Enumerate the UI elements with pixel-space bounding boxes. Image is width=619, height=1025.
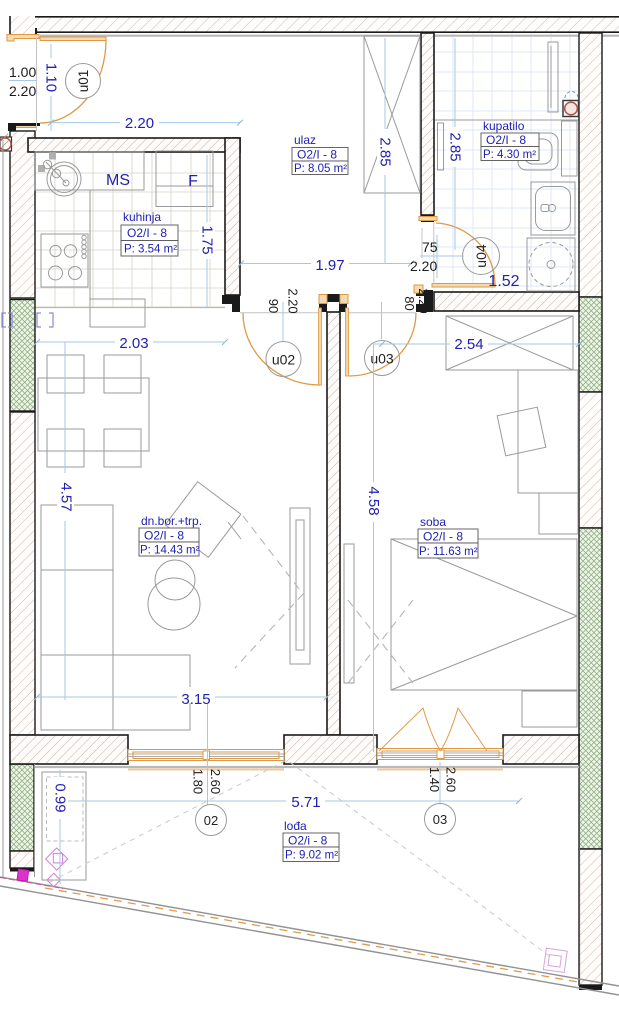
svg-text:4.57: 4.57	[58, 482, 75, 511]
svg-text:02: 02	[204, 813, 218, 828]
svg-text:O2/I - 8: O2/I - 8	[486, 133, 526, 147]
svg-text:dn.bor.+trp.: dn.bor.+trp.	[141, 514, 202, 528]
svg-text:u04: u04	[473, 244, 489, 268]
svg-text:2.85: 2.85	[377, 137, 394, 166]
svg-text:ulaz: ulaz	[294, 133, 316, 147]
svg-text:2.20: 2.20	[416, 288, 431, 313]
svg-text:1.97: 1.97	[315, 257, 344, 274]
svg-text:O2/I - 8: O2/I - 8	[297, 148, 337, 162]
svg-text:1.80: 1.80	[191, 769, 206, 794]
svg-text:kupatilo: kupatilo	[483, 119, 525, 133]
svg-text:2.20: 2.20	[410, 258, 437, 274]
svg-text:2.20: 2.20	[286, 288, 301, 313]
svg-text:O2/I - 8: O2/I - 8	[127, 226, 167, 240]
svg-text:P: 4.30 m²: P: 4.30 m²	[483, 149, 536, 161]
svg-text:O2/i - 8: O2/i - 8	[288, 834, 328, 848]
svg-text:3.15: 3.15	[181, 691, 210, 708]
svg-text:P: 3.54 m²: P: 3.54 m²	[124, 244, 177, 256]
svg-text:0.99: 0.99	[52, 783, 69, 812]
svg-text:O2/I - 8: O2/I - 8	[144, 529, 184, 543]
svg-text:MS: MS	[106, 172, 130, 189]
svg-text:soba: soba	[420, 515, 446, 529]
svg-text:1.52: 1.52	[488, 273, 519, 290]
svg-text:75: 75	[422, 239, 438, 255]
svg-text:O2/I - 8: O2/I - 8	[423, 530, 463, 544]
svg-text:F: F	[188, 173, 198, 190]
svg-text:2.85: 2.85	[447, 132, 464, 161]
svg-text:1.75: 1.75	[199, 225, 216, 254]
svg-text:2.20: 2.20	[9, 83, 36, 99]
svg-text:1.00: 1.00	[9, 64, 36, 80]
svg-text:P: 11.63 m²: P: 11.63 m²	[419, 546, 478, 558]
svg-text:P: 14.43 m²: P: 14.43 m²	[140, 545, 200, 557]
svg-text:2.54: 2.54	[454, 336, 483, 353]
svg-text:u02: u02	[272, 352, 296, 368]
svg-text:2.20: 2.20	[125, 115, 154, 132]
svg-text:80: 80	[402, 296, 417, 310]
svg-text:90: 90	[266, 299, 281, 313]
svg-text:2.03: 2.03	[119, 335, 148, 352]
svg-text:lođa: lođa	[284, 819, 307, 833]
svg-text:2.60: 2.60	[208, 769, 223, 794]
svg-text:1.40: 1.40	[427, 767, 442, 792]
svg-text:P: 9.02 m²: P: 9.02 m²	[285, 850, 338, 862]
svg-text:4.58: 4.58	[365, 486, 382, 515]
svg-text:2.60: 2.60	[444, 767, 459, 792]
svg-text:1.10: 1.10	[43, 63, 60, 92]
svg-text:03: 03	[433, 812, 447, 827]
svg-text:P: 8.05 m²: P: 8.05 m²	[294, 163, 347, 175]
svg-text:kuhinja: kuhinja	[123, 210, 161, 224]
svg-text:5.71: 5.71	[291, 794, 320, 811]
svg-text:u01: u01	[76, 70, 91, 93]
